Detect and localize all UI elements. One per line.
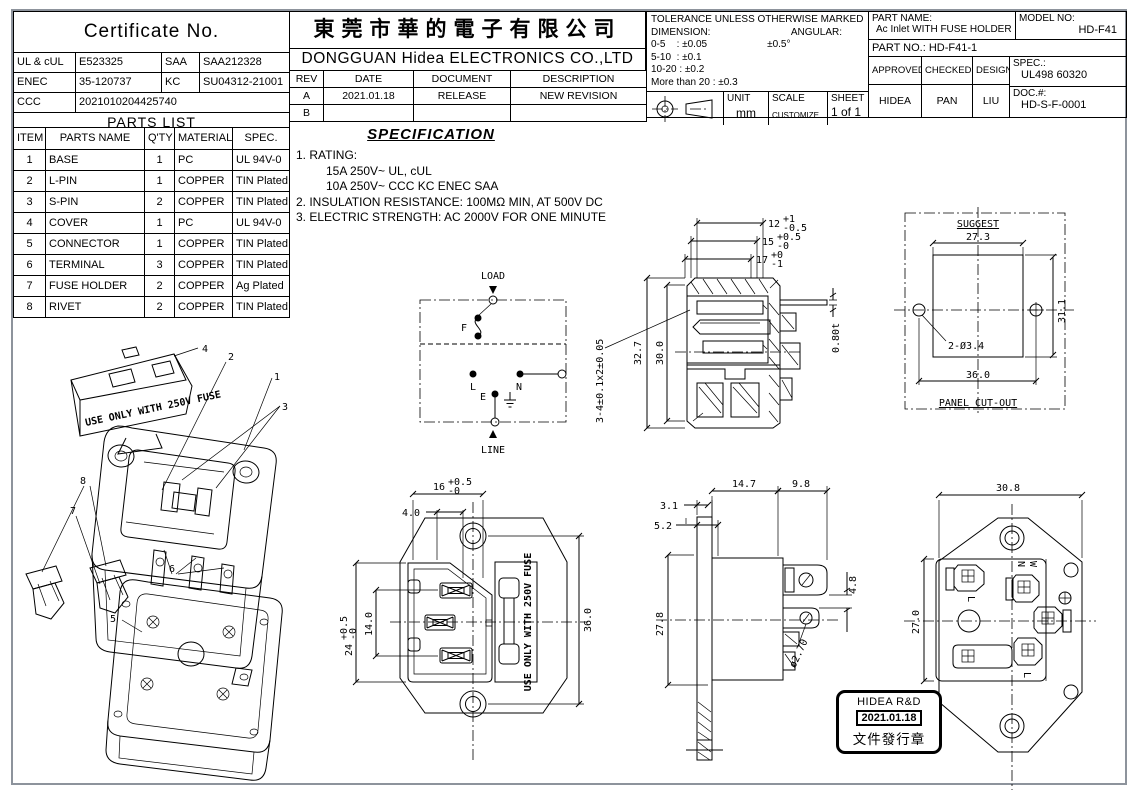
cell: PC xyxy=(175,150,233,171)
cell: 1 xyxy=(145,171,175,192)
dim-text: 30.8 xyxy=(996,483,1020,494)
cell: S-PIN xyxy=(46,192,145,213)
sheet-label: SHEET xyxy=(831,93,865,104)
callout-4: 4 xyxy=(202,344,208,355)
part-name-label: PART NAME: xyxy=(872,13,1012,24)
cell: 3 xyxy=(14,192,46,213)
cell xyxy=(414,105,511,122)
dim-9-8: 9.8 xyxy=(775,479,830,560)
cell: 2 xyxy=(145,297,175,318)
panel-cutout-drawing: SUGGEST 27.3 31.1 2-Ø3.4 36.0 PANEL CUT-… xyxy=(888,203,1110,431)
cell: FUSE HOLDER xyxy=(46,276,145,297)
dim-4-8: 4.8 xyxy=(819,572,859,632)
cell: 7 xyxy=(14,276,46,297)
cell: L-PIN xyxy=(46,171,145,192)
rear-terminals: N W L L xyxy=(946,561,1071,678)
part-no-value: PART NO.: HD-F41-1 xyxy=(869,40,1126,56)
approved-value: HIDEA xyxy=(869,85,921,117)
tolerance-title: TOLERANCE UNLESS OTHERWISE MARKED xyxy=(651,14,864,27)
terminal-l-label: L xyxy=(965,596,976,602)
cell: UL 94V-0 xyxy=(233,213,290,234)
dim-text: 4.0 xyxy=(402,508,420,519)
base-part xyxy=(106,550,282,780)
l-label: L xyxy=(470,382,476,393)
col-header: MATERIALS xyxy=(175,128,233,150)
spec-label: SPEC.: xyxy=(1013,58,1123,69)
dim-27-0: 27.0 xyxy=(911,556,934,684)
col-header: DATE xyxy=(324,71,414,88)
dim-text: 27.3 xyxy=(966,232,990,243)
spec-line: 1. RATING: xyxy=(296,148,641,164)
callout-numbers: 4 2 1 3 8 7 6 5 xyxy=(70,344,288,625)
dim-tol: -0 xyxy=(448,486,460,497)
terminal-n-label: N xyxy=(1015,561,1026,567)
cell: COPPER xyxy=(175,297,233,318)
table-row: 6TERMINAL3COPPERTIN Plated xyxy=(14,255,290,276)
cert-label: CCC xyxy=(14,93,76,113)
dim-text: 31.1 xyxy=(1057,299,1068,323)
table-row: 5CONNECTOR1COPPERTIN Plated xyxy=(14,234,290,255)
callout-8: 8 xyxy=(80,476,86,487)
cell: 1 xyxy=(14,150,46,171)
scale-label: SCALE xyxy=(772,93,824,104)
dim-text: 14.7 xyxy=(732,479,756,490)
col-header: SPEC. xyxy=(233,128,290,150)
stamp-line1: HIDEA R&D xyxy=(843,696,935,708)
cell: 1 xyxy=(145,213,175,234)
callout-3: 3 xyxy=(282,402,288,413)
dim-text: 9.8 xyxy=(792,479,810,490)
cell: PC xyxy=(175,213,233,234)
unit-value: mm xyxy=(727,104,765,119)
title-block: PART NAME: Ac Inlet WITH FUSE HOLDER MOD… xyxy=(868,11,1127,118)
dim-text: 24 xyxy=(344,644,355,656)
checked-label: CHECKED xyxy=(921,57,972,84)
doc-label: DOC.#: xyxy=(1013,88,1123,99)
cell: 8 xyxy=(14,297,46,318)
angular-label: ANGULAR: xyxy=(791,27,842,40)
dim-text: 15 xyxy=(762,237,774,248)
col-header: DOCUMENT xyxy=(414,71,511,88)
cell: 1 xyxy=(145,150,175,171)
section-view-drawing: 32.7 30.0 12 +1 -0.5 15 +0.5 -0 17 +0 -1 xyxy=(585,193,905,483)
callout-1: 1 xyxy=(274,372,280,383)
dim-text: 3.1 xyxy=(660,501,678,512)
rear-flange xyxy=(936,518,1082,752)
doc-value: HD-S-F-0001 xyxy=(1013,99,1123,111)
cell: B xyxy=(290,105,324,122)
cert-value: E523325 xyxy=(76,53,162,73)
stamp-line3: 文件發行章 xyxy=(843,728,935,748)
tol-range: 5-10 : ±0.1 xyxy=(651,52,864,65)
cell: COPPER xyxy=(175,276,233,297)
cell: 2 xyxy=(145,276,175,297)
cert-value: SAA212328 xyxy=(200,53,290,73)
dim-text: 5.2 xyxy=(654,521,672,532)
tol-range: 0-5 : ±0.05 xyxy=(651,39,707,52)
certificate-title: Certificate No. xyxy=(14,12,290,53)
suggest-label: SUGGEST xyxy=(957,219,999,230)
dim-text: 17 xyxy=(756,255,768,266)
panel-cutout-label: PANEL CUT-OUT xyxy=(939,398,1017,409)
cell: NEW REVISION xyxy=(511,88,647,105)
table-row: B xyxy=(290,105,647,122)
dim-depths: 12 +1 -0.5 15 +0.5 -0 17 +0 -1 xyxy=(682,214,807,278)
callout-leaders xyxy=(42,348,280,632)
cell xyxy=(511,105,647,122)
cert-value: 2021010204425740 xyxy=(76,93,290,113)
part-name-value: Ac Inlet WITH FUSE HOLDER xyxy=(872,24,1012,35)
certificate-table: Certificate No. UL & cUL E523325 SAA SAA… xyxy=(13,11,290,133)
earth-icon xyxy=(504,392,516,407)
exploded-view-drawing: USE ONLY WITH 250V FUSE xyxy=(14,322,316,784)
dimension-label: DIMENSION: xyxy=(651,27,710,40)
cert-label: UL & cUL xyxy=(14,53,76,73)
table-row: 4COVER1PCUL 94V-0 xyxy=(14,213,290,234)
col-header: Q'TY xyxy=(145,128,175,150)
table-row: 1BASE1PCUL 94V-0 xyxy=(14,150,290,171)
cell: 2 xyxy=(145,192,175,213)
dim-14-7: 14.7 xyxy=(709,479,781,556)
projection-symbol-icon xyxy=(650,93,718,123)
cell: 2021.01.18 xyxy=(324,88,414,105)
table-row: 8RIVET2COPPERTIN Plated xyxy=(14,297,290,318)
dim-5-2: 5.2 xyxy=(654,518,721,556)
dim-text: 16 xyxy=(433,482,445,493)
e-label: E xyxy=(480,392,486,403)
cell: COPPER xyxy=(175,171,233,192)
revision-table: REV DATE DOCUMENT DESCRIPTION A 2021.01.… xyxy=(289,70,647,122)
fuse-clip-parts xyxy=(26,560,128,619)
cell: COPPER xyxy=(175,192,233,213)
dim-text: 14.0 xyxy=(364,612,375,636)
cell: 5 xyxy=(14,234,46,255)
model-no-value: HD-F41 xyxy=(1019,24,1123,36)
cell: 1 xyxy=(145,234,175,255)
tol-range: More than 20 : ±0.3 xyxy=(651,77,864,90)
dim-text: 2-Ø3.4 xyxy=(948,340,984,352)
tol-range: 10-20 : ±0.2 xyxy=(651,64,864,77)
front-view-drawing: USE ONLY WITH 250V FUSE 16 +0.5 -0 4.0 2… xyxy=(338,460,638,770)
dim-hole-dia: ø2.70 xyxy=(788,624,811,670)
rd-stamp: HIDEA R&D 2021.01.18 文件發行章 xyxy=(836,690,942,754)
col-header: ITEM xyxy=(14,128,46,150)
cell xyxy=(324,105,414,122)
table-row: 2L-PIN1COPPERTIN Plated xyxy=(14,171,290,192)
cell: TIN Plated xyxy=(233,234,290,255)
cell: RELEASE xyxy=(414,88,511,105)
cell: 3 xyxy=(145,255,175,276)
n-label: N xyxy=(516,382,522,393)
unit-label: UNIT xyxy=(727,93,765,104)
fuse-label: F xyxy=(461,323,467,334)
dim-text: 27.0 xyxy=(911,610,922,634)
stamp-date: 2021.01.18 xyxy=(856,710,921,726)
dim-text: 3-4±0.1x2±0.05 xyxy=(595,339,606,423)
company-name-cn: 東莞市華的電子有限公司 xyxy=(289,11,646,48)
angular-value: ±0.5° xyxy=(767,39,790,52)
tolerance-block: TOLERANCE UNLESS OTHERWISE MARKED DIMENS… xyxy=(646,11,869,118)
dim-30-0: 30.0 xyxy=(655,282,685,424)
dim-text: ø2.70 xyxy=(788,638,811,670)
cell: Ag Plated xyxy=(233,276,290,297)
callout-2: 2 xyxy=(228,352,234,363)
drawing-sheet: Certificate No. UL & cUL E523325 SAA SAA… xyxy=(0,0,1137,792)
cell: TIN Plated xyxy=(233,255,290,276)
cell: TIN Plated xyxy=(233,171,290,192)
cell: TIN Plated xyxy=(233,297,290,318)
cell: 2 xyxy=(14,171,46,192)
cell: COPPER xyxy=(175,234,233,255)
cert-label: SAA xyxy=(162,53,200,73)
col-header: REV xyxy=(290,71,324,88)
col-header: DESCRIPTION xyxy=(511,71,647,88)
callout-5: 5 xyxy=(110,614,116,625)
cert-value: 35-120737 xyxy=(76,73,162,93)
table-row: 3S-PIN2COPPERTIN Plated xyxy=(14,192,290,213)
cert-label: KC xyxy=(162,73,200,93)
designer-value: LIU xyxy=(972,85,1009,117)
dim-text: 32.7 xyxy=(633,341,644,365)
cert-value: SU04312-21001 xyxy=(200,73,290,93)
dim-text: 0.80t xyxy=(831,323,842,353)
wiring-diagram: LOAD F L N E LINE xyxy=(398,266,588,458)
specification-title: SPECIFICATION xyxy=(367,126,495,143)
company-name-en: DONGGUAN Hidea ELECTRONICS CO.,LTD xyxy=(289,48,646,70)
cell: COVER xyxy=(46,213,145,234)
load-label: LOAD xyxy=(481,271,505,282)
dim-tol: -0 xyxy=(348,628,359,640)
dim-text: 12 xyxy=(768,219,780,230)
cell: TERMINAL xyxy=(46,255,145,276)
cell: COPPER xyxy=(175,255,233,276)
cell: UL 94V-0 xyxy=(233,150,290,171)
col-header: PARTS NAME xyxy=(46,128,145,150)
checked-value: PAN xyxy=(921,85,972,117)
cell: CONNECTOR xyxy=(46,234,145,255)
dim-text: 4.8 xyxy=(848,576,859,594)
callout-6: 6 xyxy=(169,564,175,575)
spec-value: UL498 60320 xyxy=(1013,69,1123,81)
dim-pin-spec: 3-4±0.1x2±0.05 xyxy=(595,310,690,423)
model-no-label: MODEL NO: xyxy=(1019,13,1123,24)
dim-holes: 2-Ø3.4 xyxy=(922,315,984,352)
dim-text: 36.0 xyxy=(583,608,594,632)
front-flange: USE ONLY WITH 250V FUSE xyxy=(400,518,567,717)
terminal-l-label: L xyxy=(1021,672,1032,678)
cert-label: ENEC xyxy=(14,73,76,93)
dim-text: 36.0 xyxy=(966,370,990,381)
dim-pin-thickness: 0.80t xyxy=(829,288,842,353)
table-row: 7FUSE HOLDER2COPPERAg Plated xyxy=(14,276,290,297)
terminal-w-label: W xyxy=(1027,561,1038,568)
cell: 6 xyxy=(14,255,46,276)
cell: BASE xyxy=(46,150,145,171)
section-body xyxy=(687,278,827,428)
dim-tol: -1 xyxy=(771,259,783,270)
approved-label: APPROVED xyxy=(869,57,921,84)
line-label: LINE xyxy=(481,445,505,456)
designer-label: DESIGNER xyxy=(972,57,1009,84)
sheet-value: 1 of 1 xyxy=(831,104,865,118)
dim-text: 27.8 xyxy=(655,612,666,636)
cell: 4 xyxy=(14,213,46,234)
body-part xyxy=(92,426,276,686)
side-body xyxy=(686,517,827,760)
cell: A xyxy=(290,88,324,105)
callout-7: 7 xyxy=(70,506,76,517)
table-row: A 2021.01.18 RELEASE NEW REVISION xyxy=(290,88,647,105)
parts-list-table: ITEM PARTS NAME Q'TY MATERIALS SPEC. 1BA… xyxy=(13,127,290,318)
cell: RIVET xyxy=(46,297,145,318)
dim-text: 30.0 xyxy=(655,341,666,365)
spec-line: 15A 250V~ UL, cUL xyxy=(296,164,641,180)
scale-value: CUSTOMIZE xyxy=(772,104,824,121)
cell: TIN Plated xyxy=(233,192,290,213)
